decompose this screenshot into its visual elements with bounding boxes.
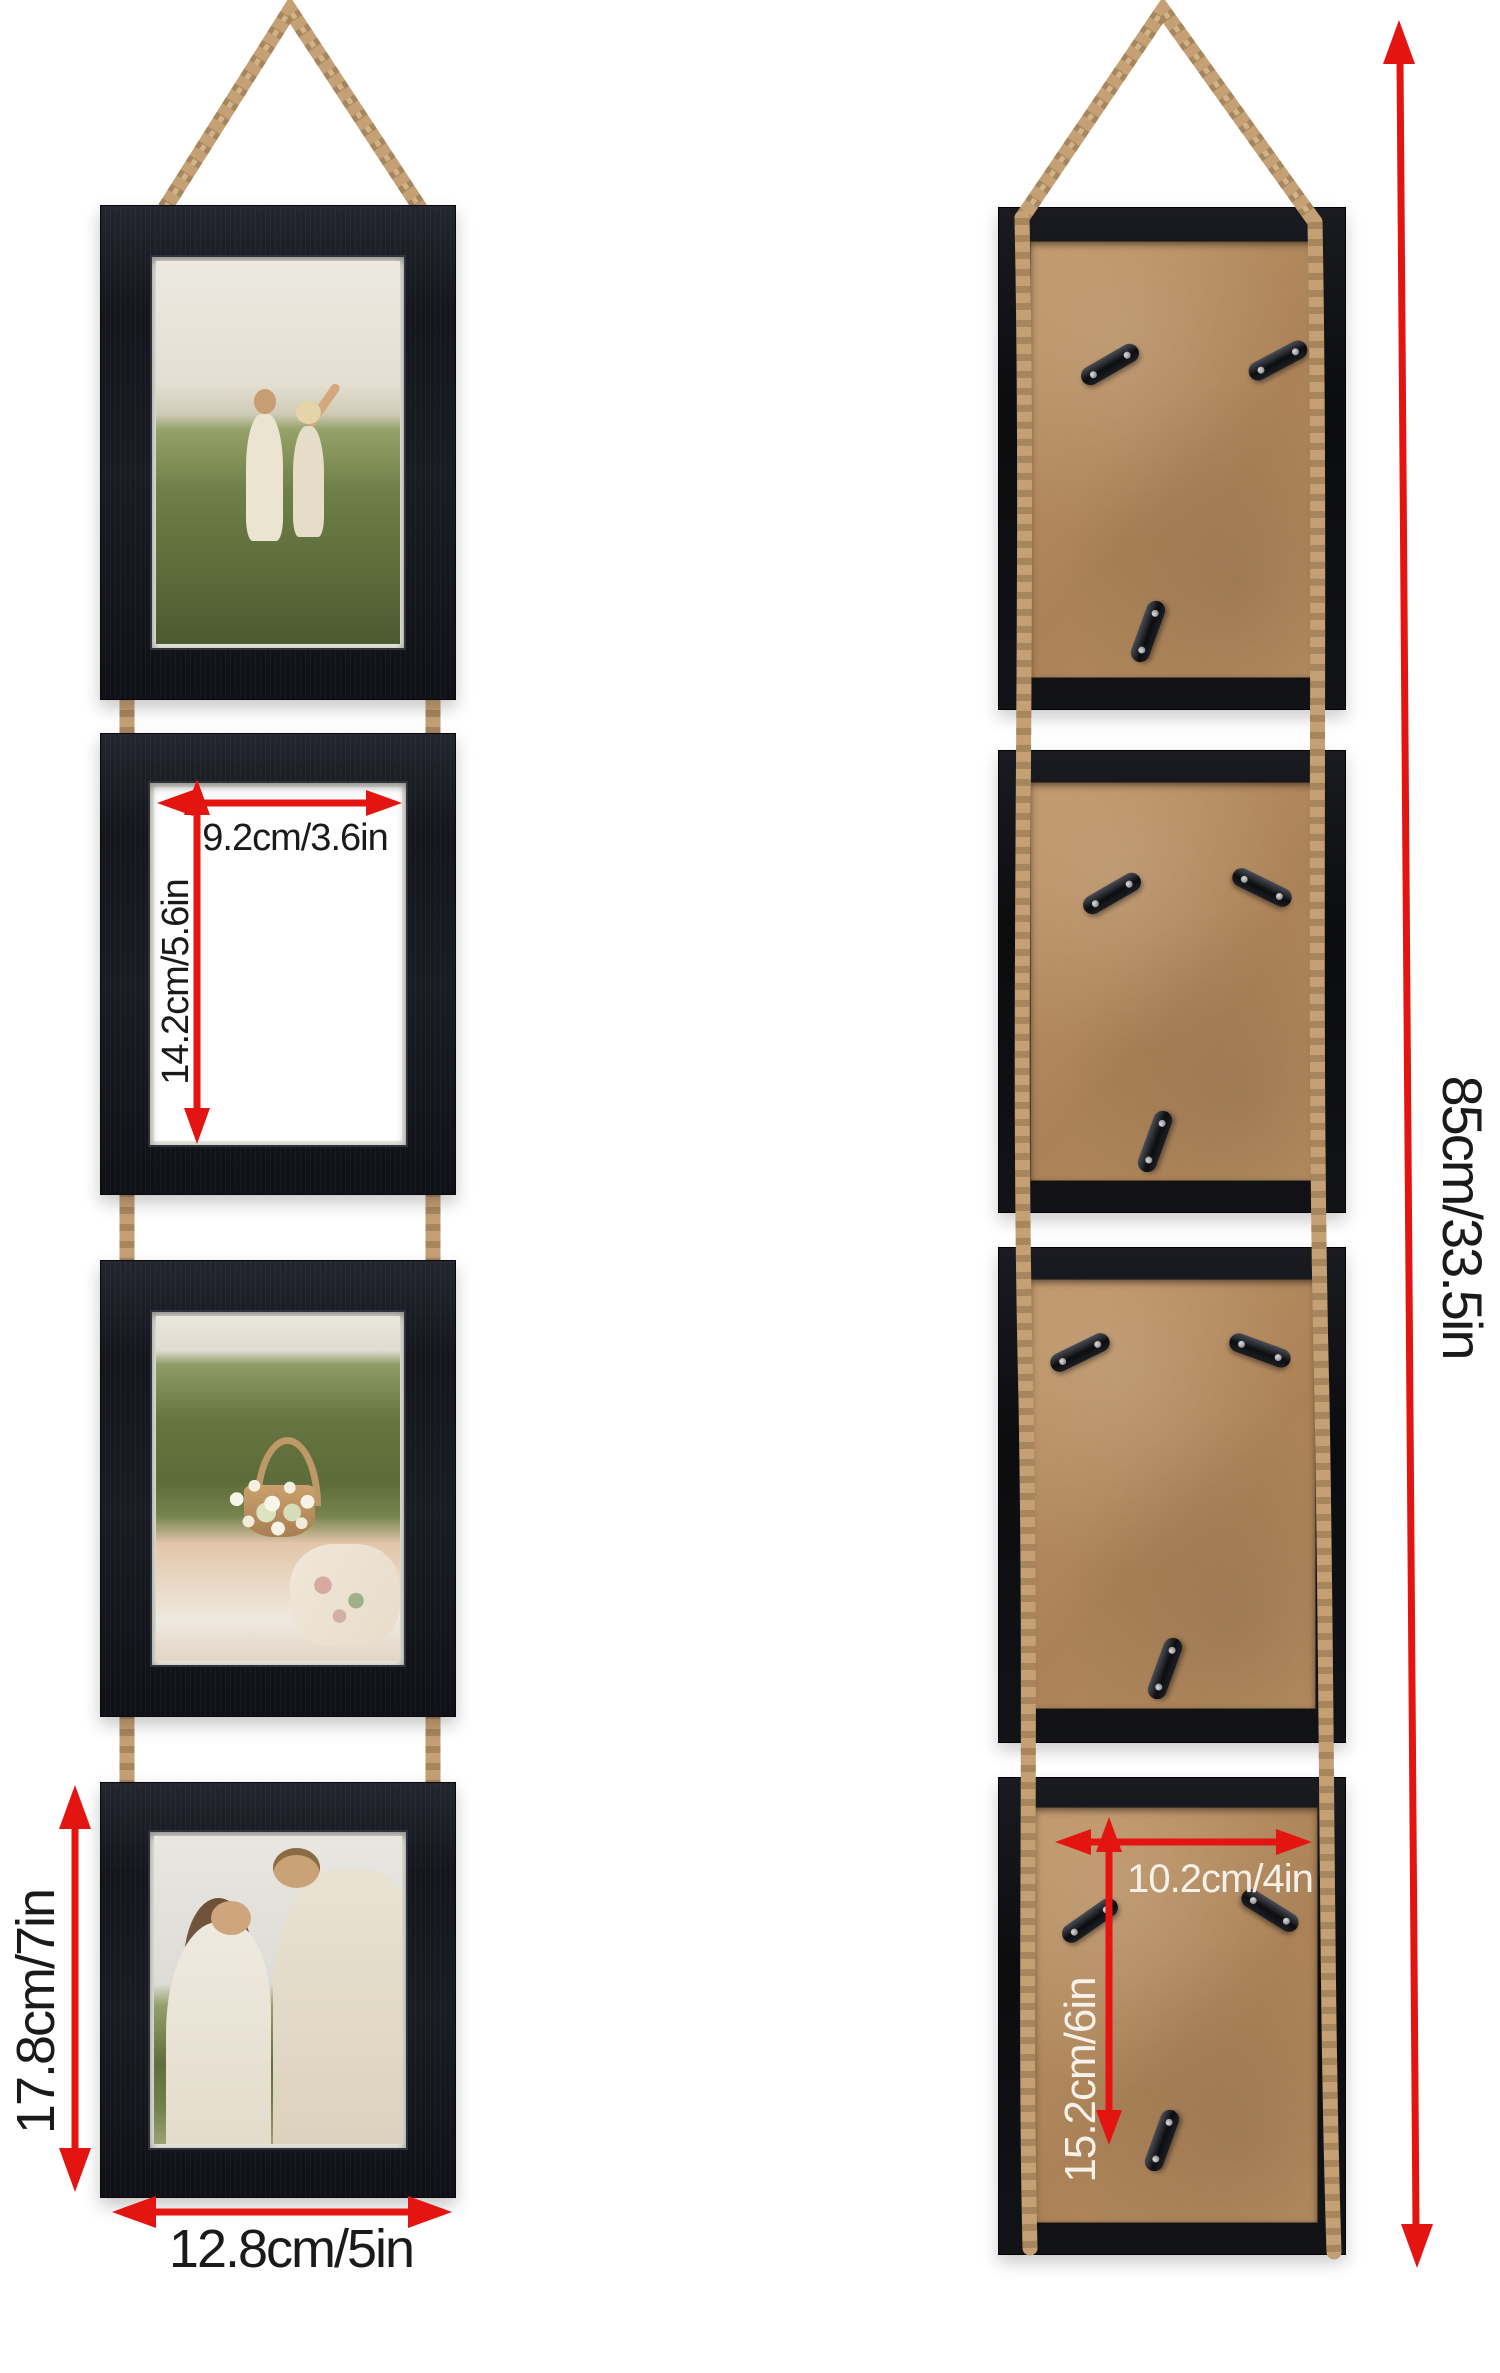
dimension-label-photo-width: 9.2cm/3.6in (202, 819, 387, 857)
photo-couple-embracing (154, 1836, 402, 2144)
front-frame-4-opening (150, 1832, 406, 2148)
front-frame-4 (100, 1782, 456, 2198)
front-frame-2 (100, 733, 456, 1195)
dimension-label-photo-height: 14.2cm/5.6in (157, 879, 195, 1085)
back-frame-1-backing (1030, 241, 1316, 678)
floral-pillow (290, 1544, 400, 1648)
figure-him (273, 1870, 402, 2144)
dimension-label-frame-height: 17.8cm/7in (9, 1890, 63, 2134)
dimension-label-back-height: 15.2cm/6in (1059, 1977, 1103, 2182)
flower-bouquet (219, 1468, 336, 1558)
dimension-arrow-total-height (1383, 20, 1433, 2268)
photo-couple-walking (156, 261, 400, 644)
back-frame-4 (998, 1777, 1346, 2255)
dimension-label-frame-width: 12.8cm/5in (169, 2222, 413, 2276)
product-dimension-diagram: 9.2cm/3.6in 14.2cm/5.6in 17.8cm/7in 12.8… (0, 0, 1500, 2373)
figure-man (246, 414, 283, 540)
front-frame-1-opening (152, 257, 404, 648)
figure-woman (293, 426, 325, 537)
figure-man-head (254, 389, 276, 414)
dimension-label-back-width: 10.2cm/4in (1127, 1859, 1313, 1899)
front-frame-3 (100, 1260, 456, 1717)
figure-woman-hat (296, 401, 320, 424)
photo-picnic-basket (156, 1316, 400, 1661)
figure-her (166, 1922, 270, 2144)
front-frame-3-opening (152, 1312, 404, 1665)
front-frame-1 (100, 205, 456, 700)
back-frame-2 (998, 750, 1346, 1213)
back-frame-3 (998, 1247, 1346, 1743)
rope-triangle-front (165, 10, 420, 208)
back-frame-1 (998, 207, 1346, 710)
figure-her-head (211, 1901, 251, 1935)
back-frame-2-backing (1030, 782, 1316, 1181)
dimension-label-total-height: 85cm/33.5in (1434, 1075, 1490, 1358)
